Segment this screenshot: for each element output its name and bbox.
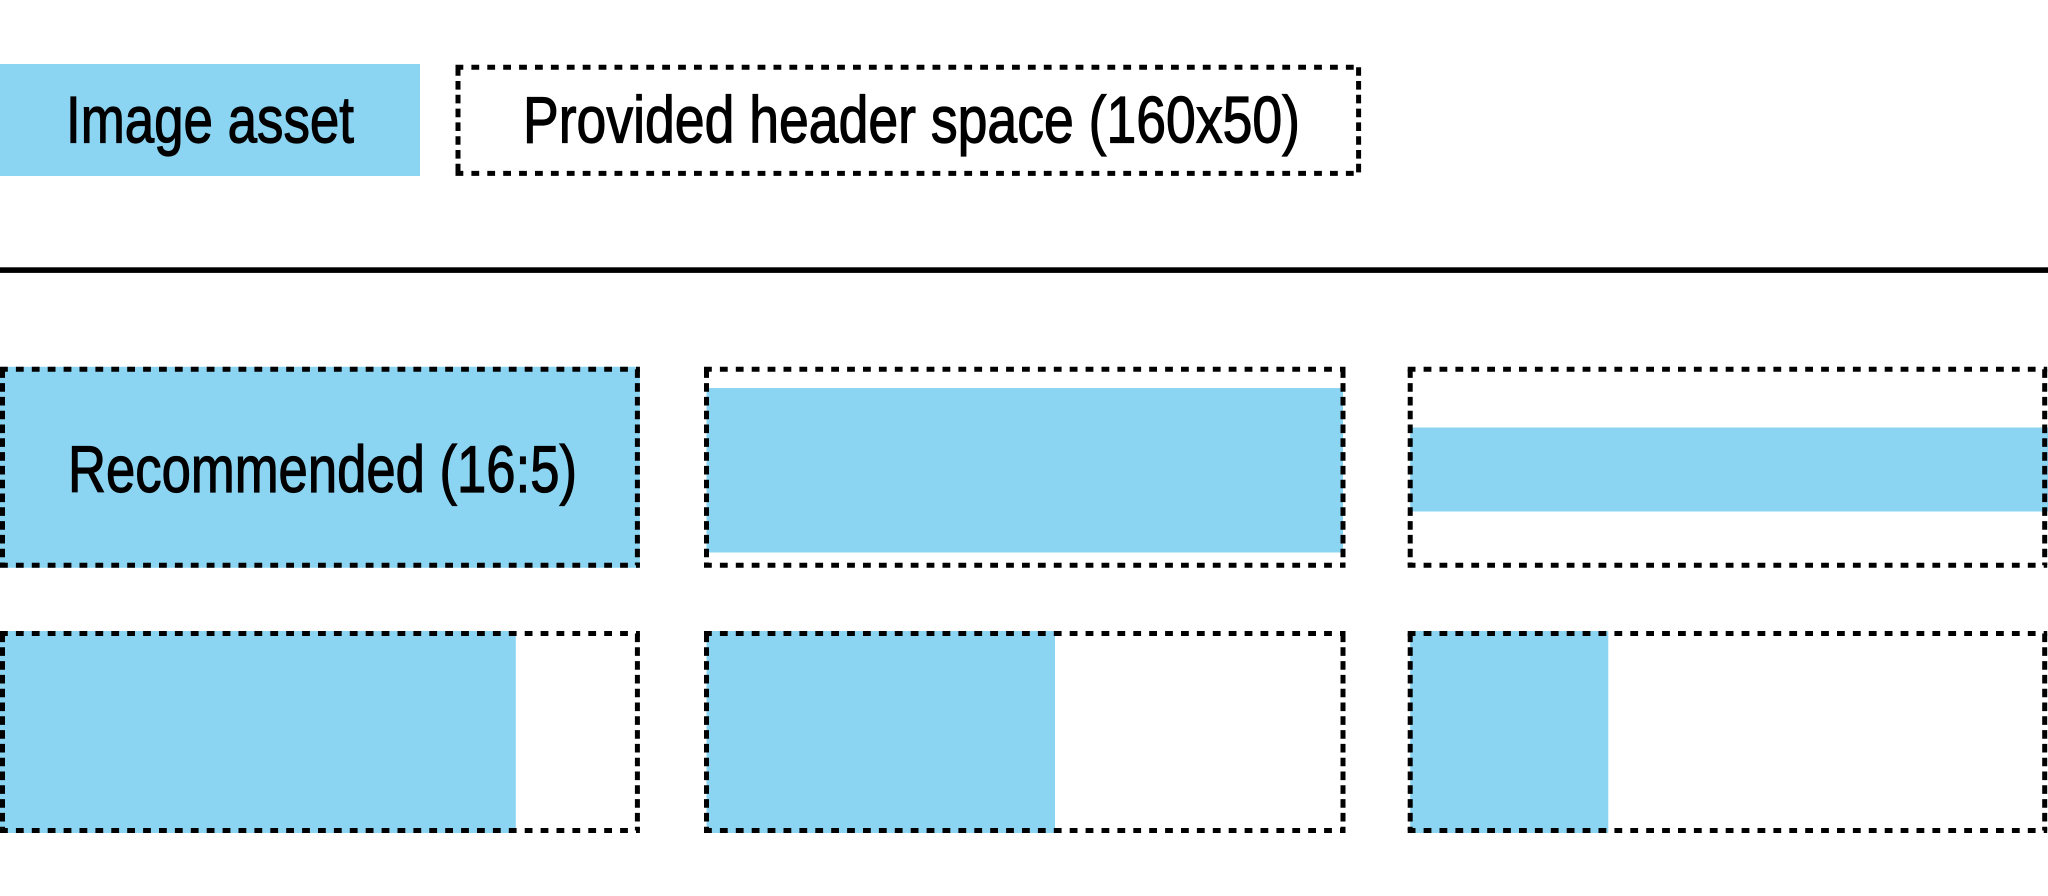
- svg-text:Recommended (16:5): Recommended (16:5): [68, 432, 577, 506]
- svg-text:Provided header space (160x50): Provided header space (160x50): [523, 83, 1300, 157]
- svg-text:Image asset: Image asset: [66, 83, 354, 157]
